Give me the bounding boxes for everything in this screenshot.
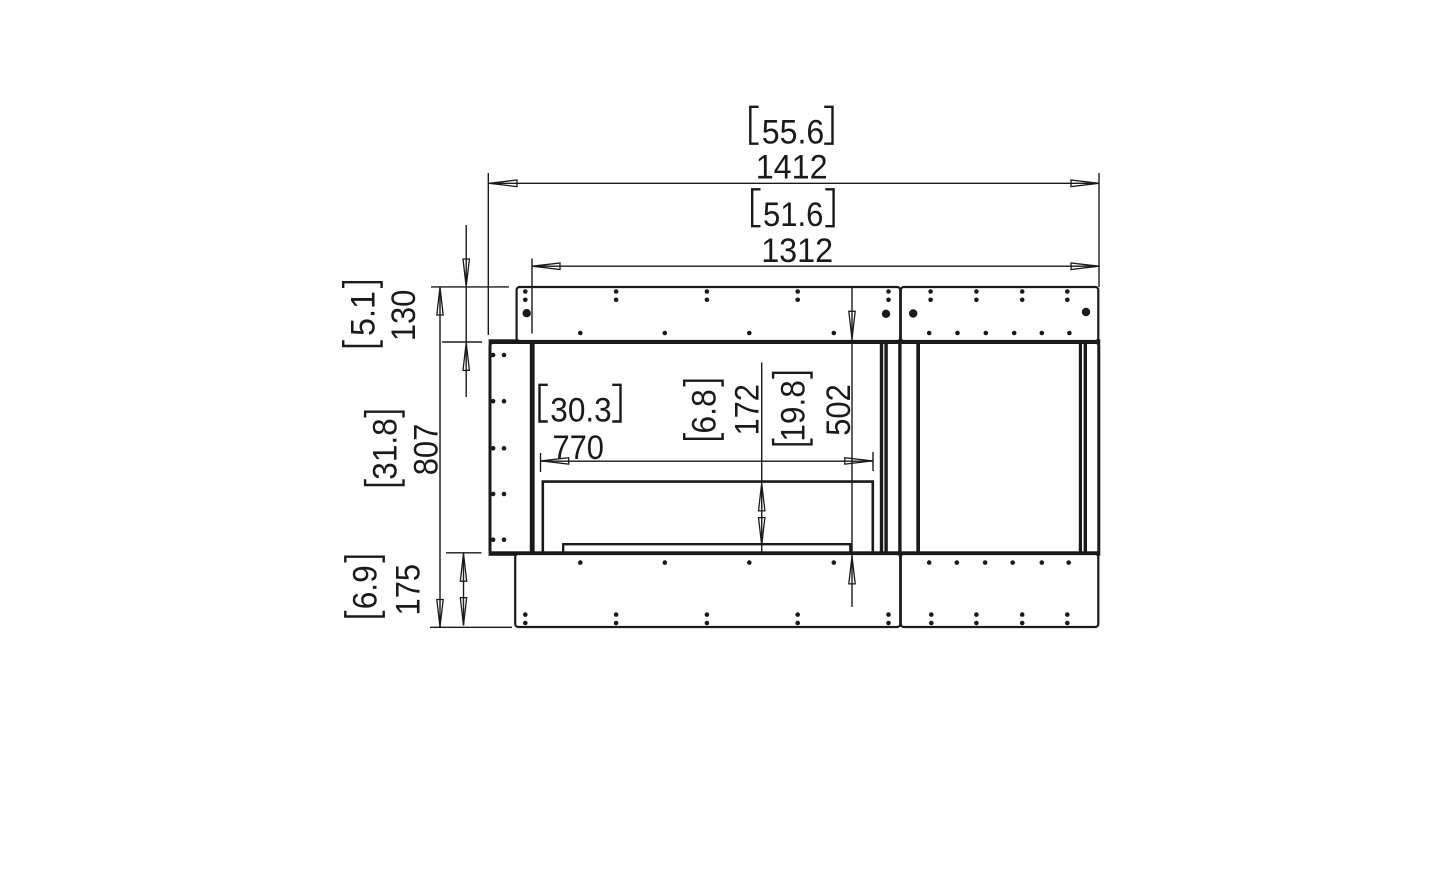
- svg-text:1412: 1412: [756, 149, 828, 187]
- svg-text:172: 172: [729, 384, 767, 436]
- svg-text:1312: 1312: [761, 232, 833, 270]
- svg-text:31.8: 31.8: [366, 418, 404, 480]
- svg-text:770: 770: [552, 429, 604, 467]
- svg-text:130: 130: [385, 290, 423, 342]
- svg-text:807: 807: [407, 424, 445, 476]
- svg-text:19.8: 19.8: [774, 380, 812, 442]
- svg-text:5.1: 5.1: [345, 291, 383, 336]
- svg-text:30.3: 30.3: [550, 391, 612, 429]
- svg-text:55.6: 55.6: [762, 114, 825, 152]
- svg-text:502: 502: [820, 384, 858, 436]
- svg-text:175: 175: [389, 564, 427, 616]
- svg-text:6.9: 6.9: [347, 565, 385, 609]
- svg-text:51.6: 51.6: [763, 196, 824, 234]
- svg-text:6.8: 6.8: [686, 389, 724, 434]
